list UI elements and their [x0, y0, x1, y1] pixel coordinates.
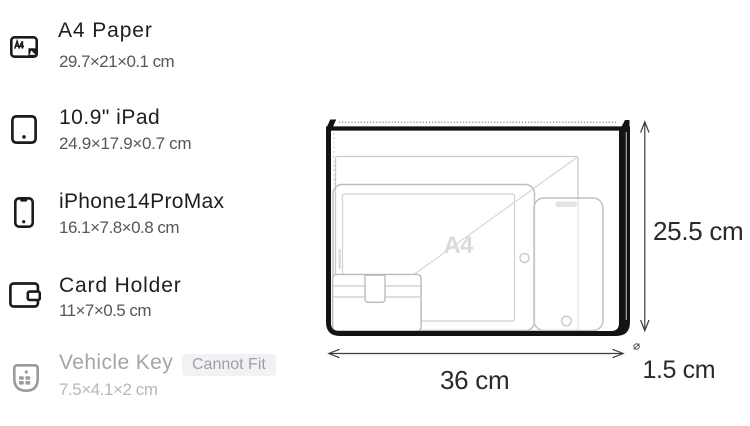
svg-text:A4: A4: [444, 232, 475, 259]
svg-text:⌀: ⌀: [633, 339, 640, 353]
svg-text:36 cm: 36 cm: [440, 365, 509, 395]
svg-text:25.5 cm: 25.5 cm: [653, 216, 743, 246]
svg-text:1.5 cm: 1.5 cm: [643, 356, 716, 384]
